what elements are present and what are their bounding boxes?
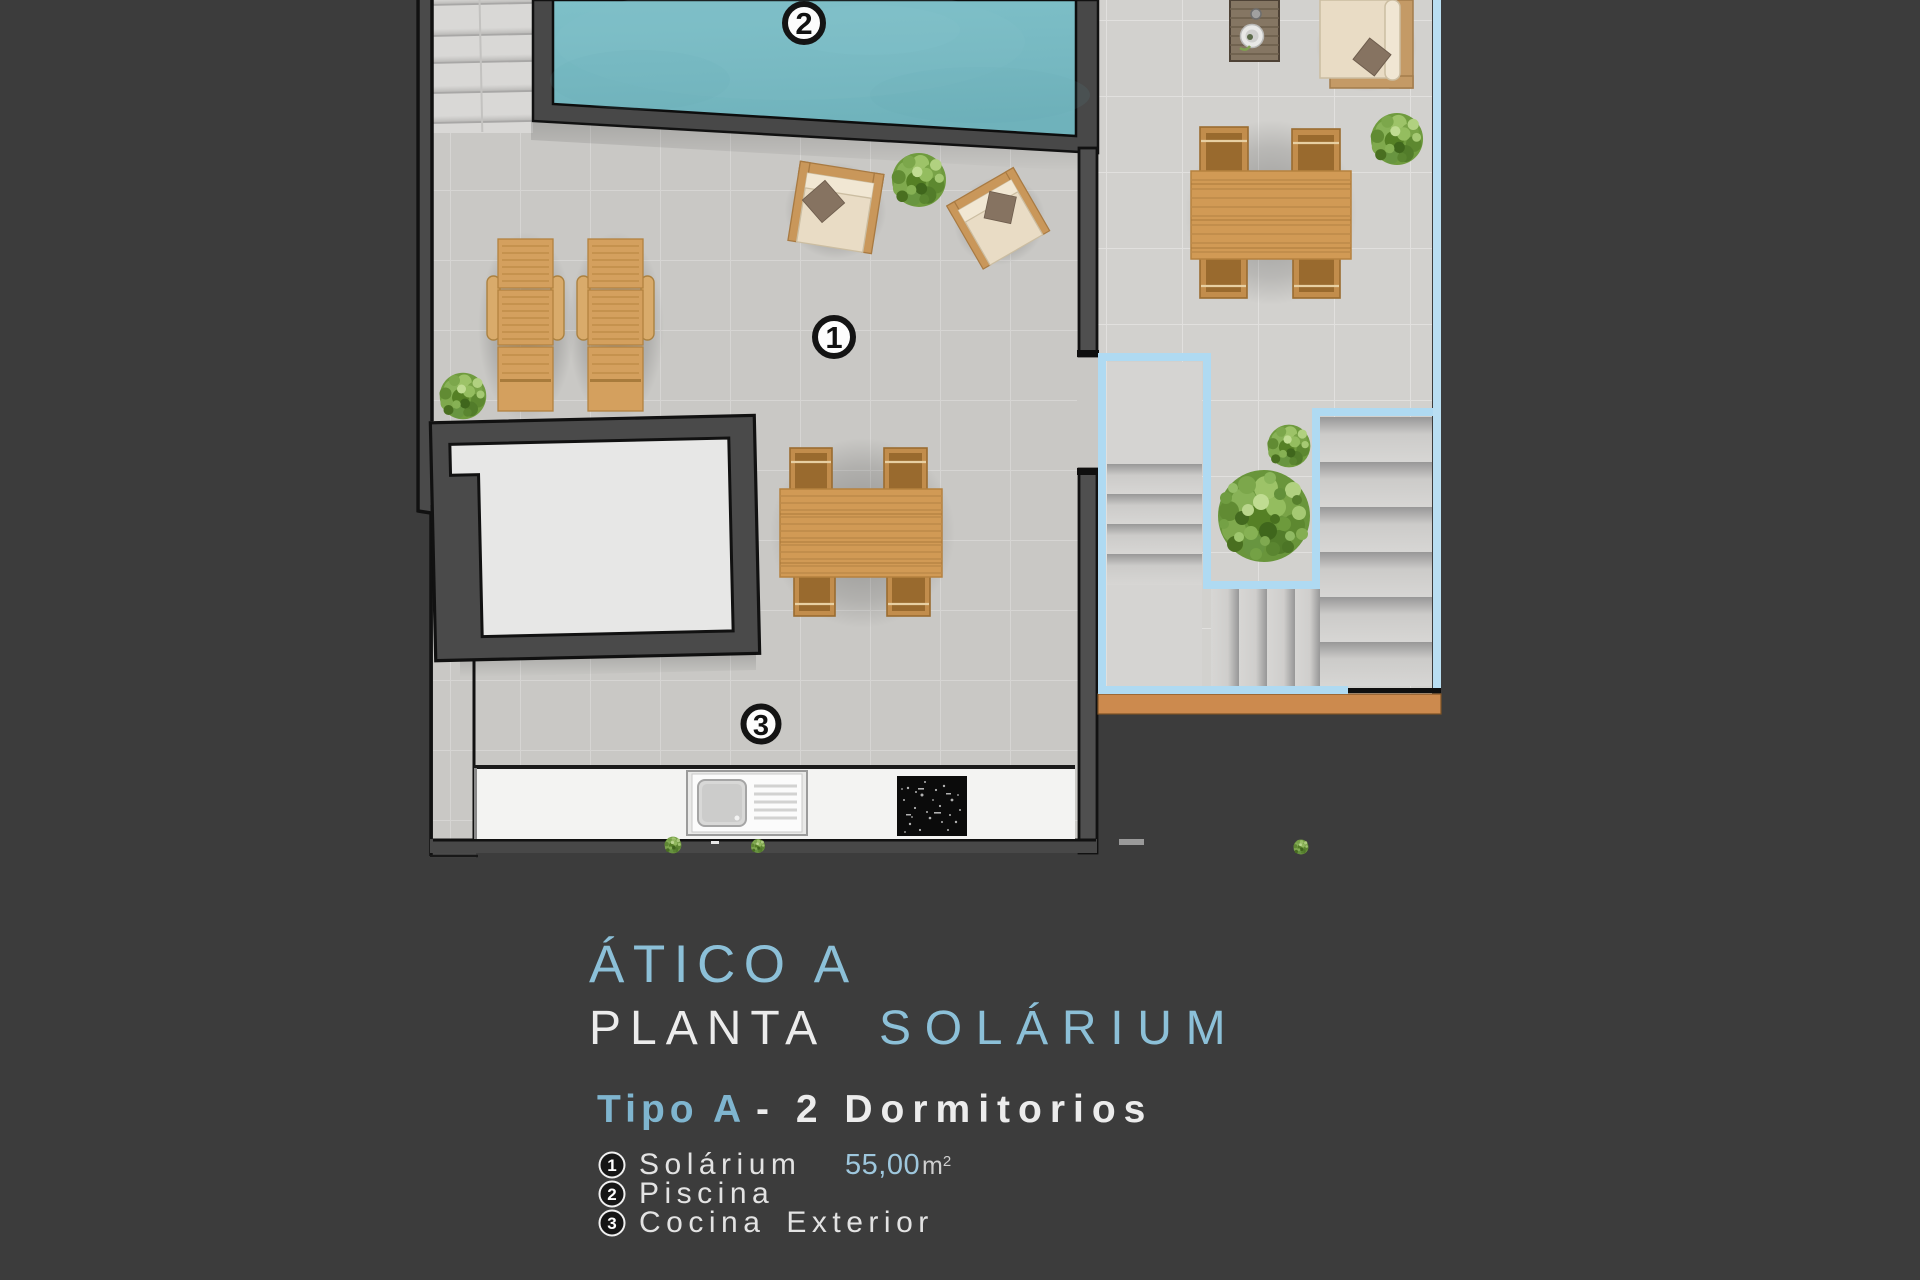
svg-text:3: 3 bbox=[753, 710, 769, 742]
svg-text:3: 3 bbox=[607, 1214, 616, 1233]
svg-text:2: 2 bbox=[607, 1185, 616, 1204]
svg-text:SOLÁRIUM: SOLÁRIUM bbox=[879, 1002, 1239, 1055]
svg-text:CocinaExterior: CocinaExterior bbox=[639, 1206, 934, 1239]
svg-text:55,00: 55,00 bbox=[845, 1149, 920, 1181]
svg-text:Tipo A: Tipo A bbox=[597, 1088, 746, 1131]
svg-text:PLANTA: PLANTA bbox=[589, 1002, 826, 1055]
svg-text:- 2 Dormitorios: - 2 Dormitorios bbox=[756, 1088, 1153, 1131]
svg-text:ÁTICO A: ÁTICO A bbox=[589, 935, 858, 994]
svg-text:1: 1 bbox=[825, 320, 842, 355]
svg-text:1: 1 bbox=[607, 1156, 616, 1175]
svg-text:2: 2 bbox=[795, 6, 812, 41]
